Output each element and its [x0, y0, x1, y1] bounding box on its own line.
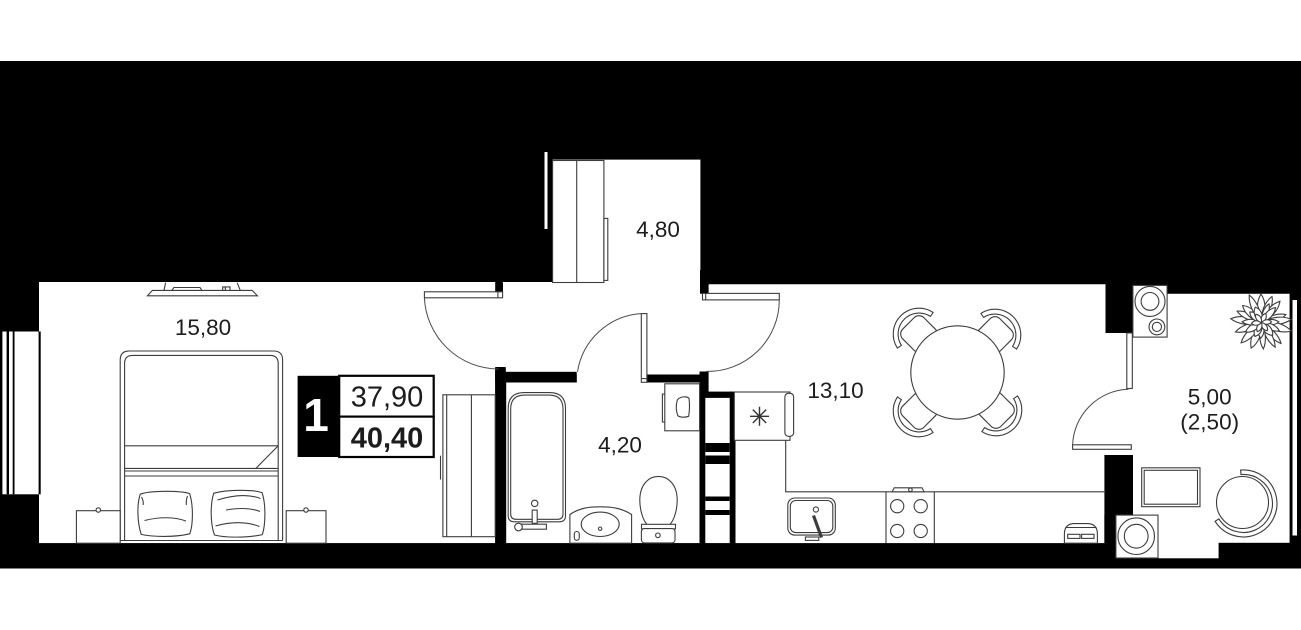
svg-text:13,10: 13,10 — [807, 378, 863, 403]
svg-text:37,90: 37,90 — [351, 382, 424, 414]
svg-text:4,80: 4,80 — [636, 217, 680, 242]
svg-text:(2,50): (2,50) — [1180, 410, 1239, 435]
svg-text:15,80: 15,80 — [175, 315, 231, 340]
svg-text:5,00: 5,00 — [1188, 385, 1232, 410]
svg-text:40,40: 40,40 — [351, 423, 424, 455]
svg-text:1: 1 — [303, 389, 329, 441]
svg-text:4,20: 4,20 — [598, 433, 642, 458]
